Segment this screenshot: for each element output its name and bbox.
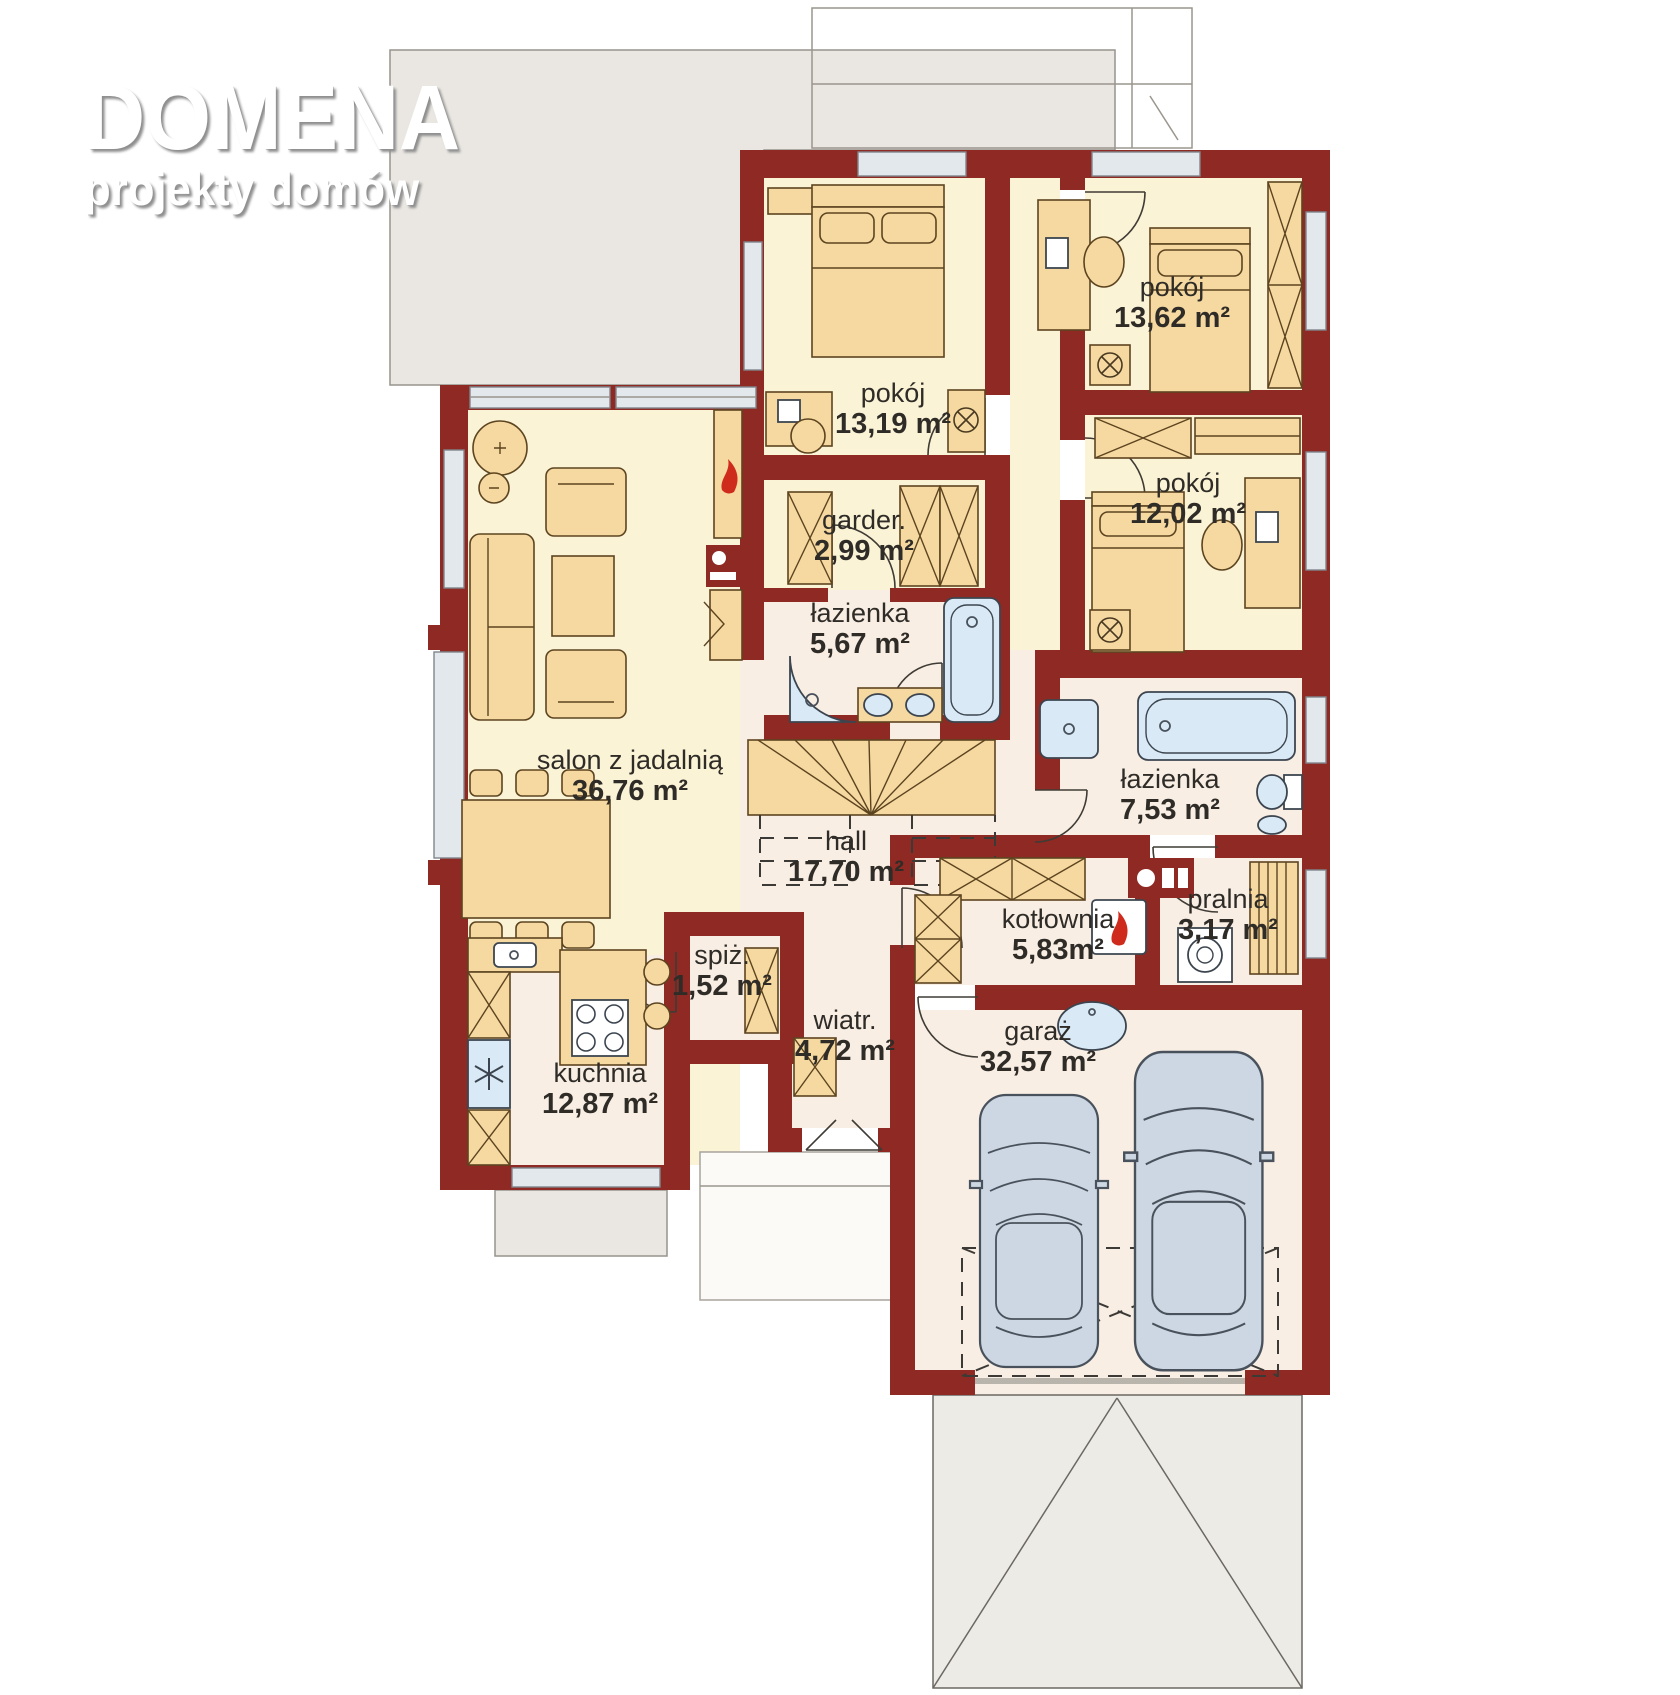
brand-logo: DOMENA projekty domów <box>84 72 493 212</box>
label-pralnia: pralnia 3,17 m² <box>1178 884 1278 947</box>
kuchnia-window <box>512 1168 660 1187</box>
car-icon-1 <box>970 1095 1108 1367</box>
armchair-icon-2 <box>546 650 626 718</box>
bathtub-icon-2 <box>1138 692 1295 760</box>
fridge-icon <box>468 1040 510 1108</box>
toilet-icon <box>1257 775 1302 809</box>
wardrobe-icon-2 <box>1095 418 1300 458</box>
pokoj1-window-top <box>858 152 966 176</box>
kitchen-sink-icon <box>494 943 536 967</box>
label-pokoj-3: pokój 12,02 m² <box>1130 468 1246 531</box>
floorplan-page: DOMENA projekty domów pokój 13,19 m² pok… <box>0 0 1680 1695</box>
label-spizarnia: spiż. 1,52 m² <box>672 940 772 1003</box>
brand-tagline: projekty domów <box>84 166 472 212</box>
kitchen-step <box>495 1190 667 1256</box>
driveway <box>933 1395 1302 1688</box>
stool-icon-2 <box>644 1003 670 1029</box>
garage-door-sill <box>975 1378 1245 1384</box>
pokoj3-window-right <box>1306 452 1326 570</box>
stool-icon <box>644 959 670 985</box>
entry-porch <box>700 1152 912 1300</box>
lazienka2-window <box>1306 697 1326 763</box>
label-pokoj-1: pokój 13,19 m² <box>835 378 951 441</box>
pokoj2-window-top <box>1092 152 1200 176</box>
pokoj1-window-left <box>744 242 762 370</box>
desk-icon <box>766 392 832 453</box>
brand-name: DOMENA <box>84 72 460 164</box>
label-lazienka-2: łazienka 7,53 m² <box>1120 764 1220 827</box>
washbasin-icon <box>1040 700 1098 758</box>
salon-window-left <box>444 450 464 588</box>
label-pokoj-2: pokój 13,62 m² <box>1114 272 1230 335</box>
label-garderoba: garder. 2,99 m² <box>814 505 914 568</box>
label-hall: hall 17,70 m² <box>788 826 904 889</box>
label-salon: salon z jadalnią 36,76 m² <box>537 745 723 808</box>
coffee-table-icon <box>552 556 614 636</box>
bidet-icon <box>1258 816 1286 834</box>
car-icon-2 <box>1124 1052 1273 1370</box>
double-bed-icon <box>812 185 944 357</box>
bathtub-icon <box>944 598 1000 722</box>
label-kuchnia: kuchnia 12,87 m² <box>542 1058 658 1121</box>
label-lazienka-1: łazienka 5,67 m² <box>810 598 910 661</box>
salon-bay-window <box>434 652 464 858</box>
armchair-icon <box>546 468 626 536</box>
cooktop-icon <box>572 1000 628 1056</box>
pokoj2-window-right <box>1306 212 1326 330</box>
pralnia-window <box>1306 870 1326 958</box>
wardrobe-icon <box>1268 182 1302 388</box>
label-wiatrolap: wiatr. 4,72 m² <box>795 1005 895 1068</box>
label-garaz: garaż 32,57 m² <box>980 1016 1096 1079</box>
label-kotlownia: kotłownia 5,83m² <box>1002 904 1115 967</box>
